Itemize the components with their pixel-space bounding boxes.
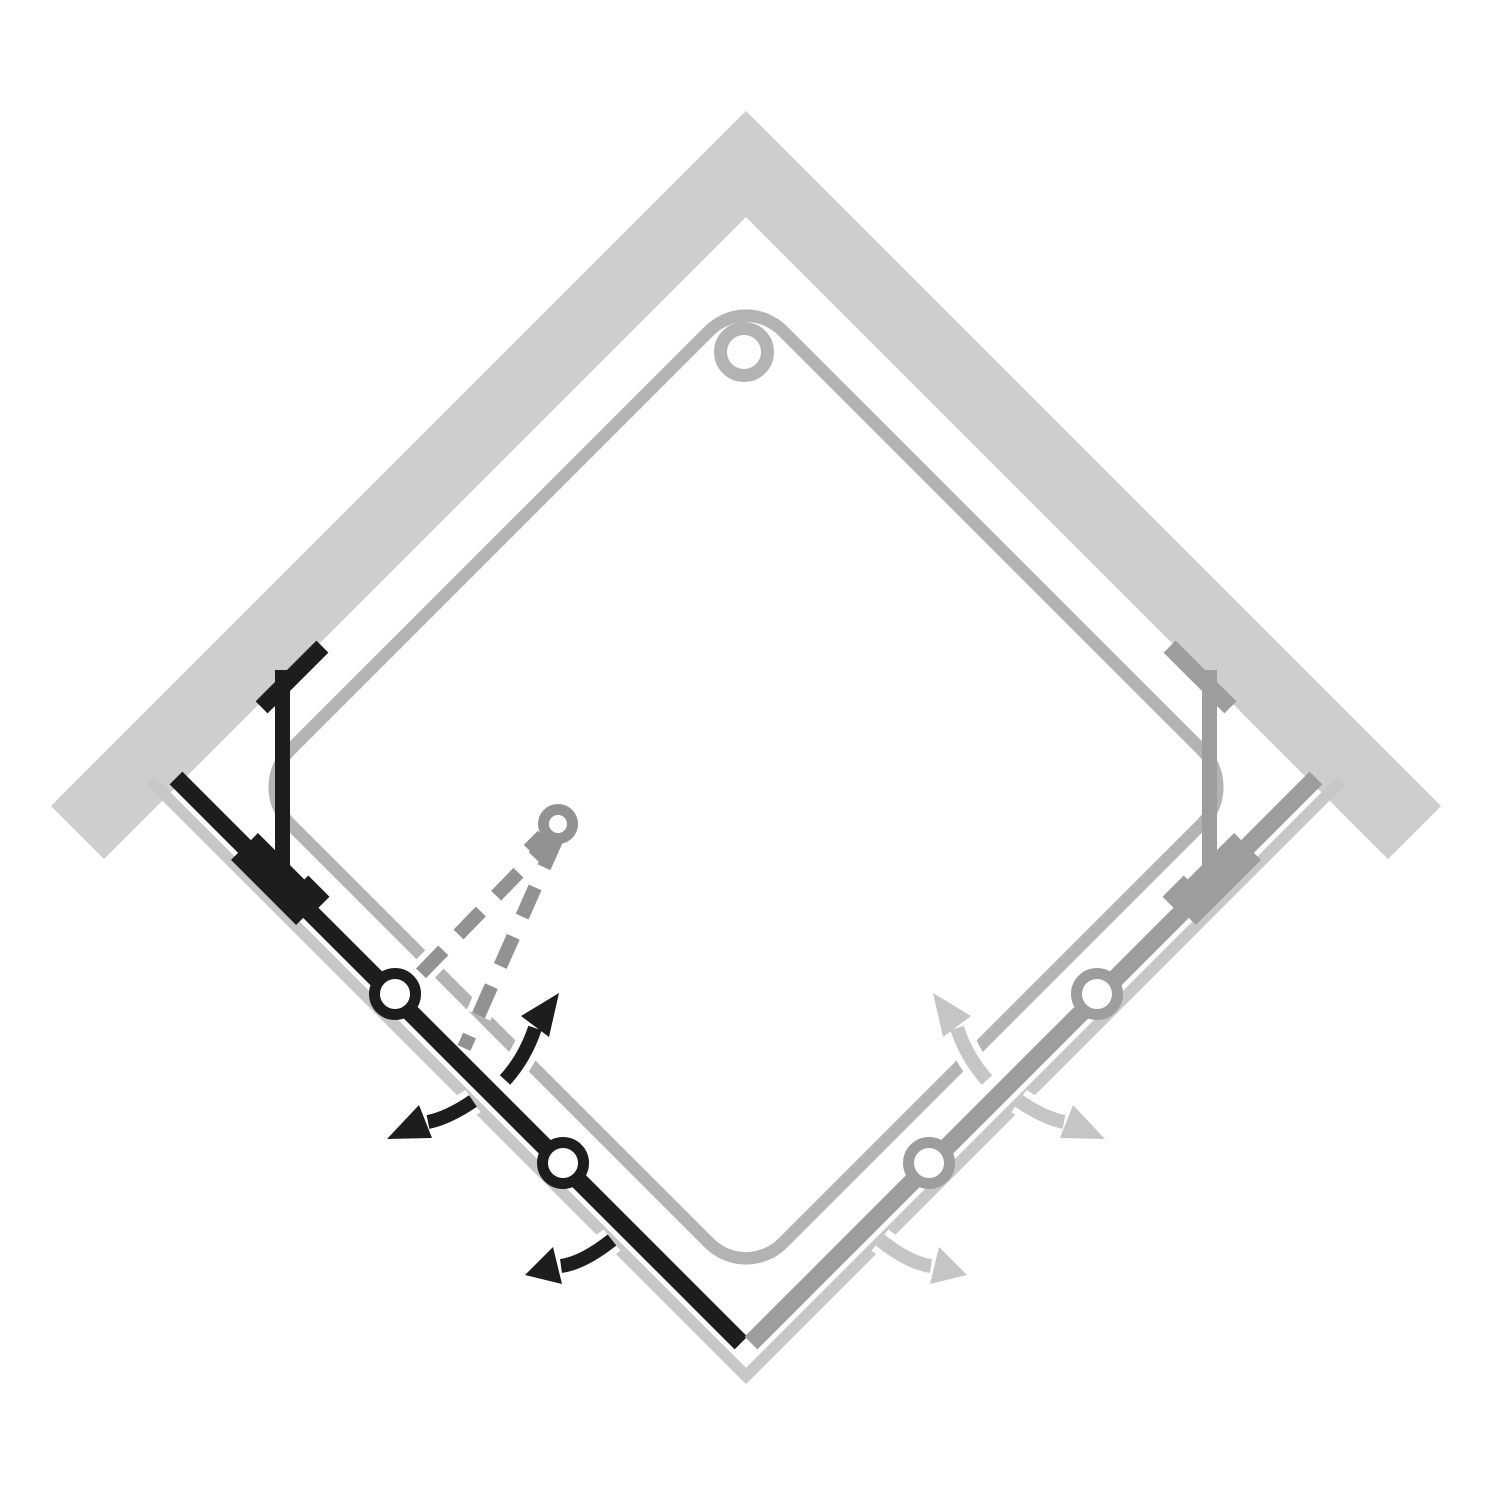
diagram-canvas <box>0 0 1500 1500</box>
background <box>0 0 1500 1500</box>
stabilizer-bar <box>1202 670 1217 872</box>
drain-circle-icon <box>721 329 768 376</box>
hinge-icon <box>1077 974 1118 1015</box>
hinge-icon <box>909 1143 950 1184</box>
hinge-icon <box>375 974 416 1015</box>
hinge-icon <box>543 1143 584 1184</box>
open-pivot-circle <box>544 810 573 839</box>
shower-enclosure-plan-diagram <box>0 0 1500 1500</box>
stabilizer-bar <box>275 670 290 872</box>
